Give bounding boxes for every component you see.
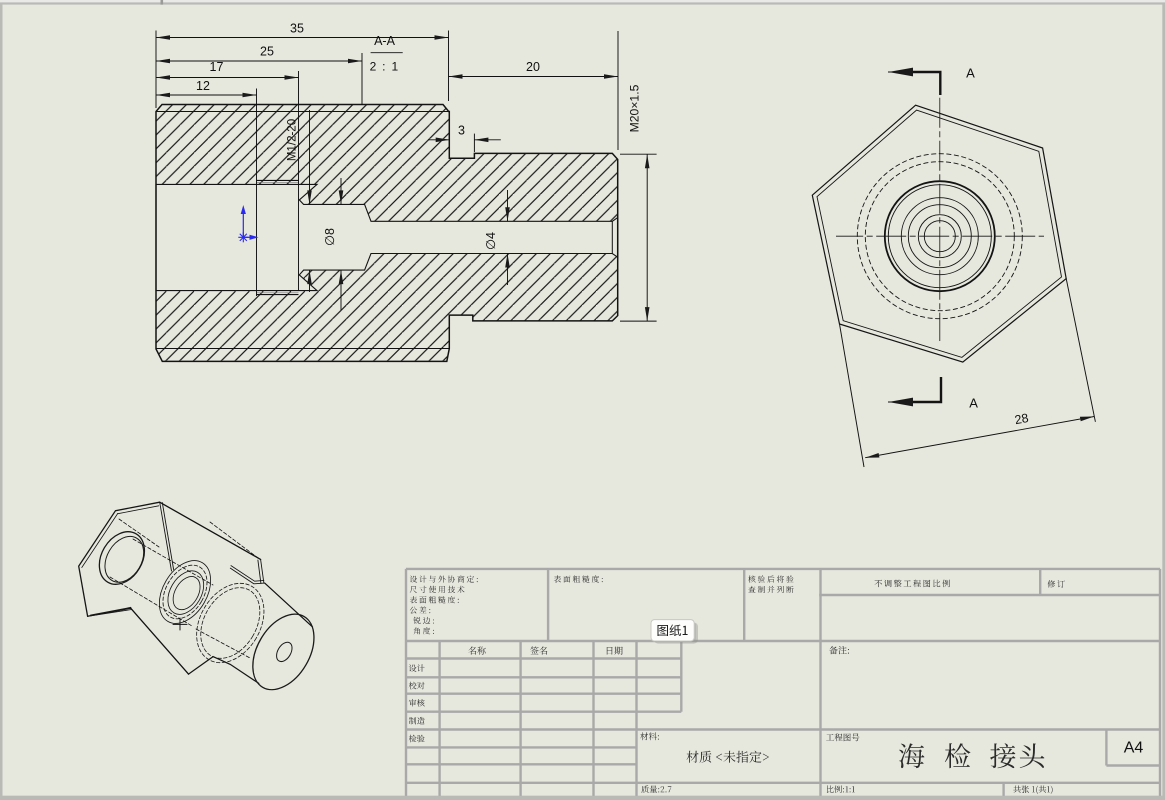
svg-text:35: 35 <box>290 22 304 36</box>
svg-text:25: 25 <box>260 45 274 59</box>
svg-text:M20×1.5: M20×1.5 <box>628 84 642 132</box>
svg-text:∅4: ∅4 <box>484 232 498 250</box>
svg-text:20: 20 <box>526 60 540 74</box>
svg-text:A: A <box>966 66 975 81</box>
svg-text:A: A <box>969 396 978 411</box>
svg-text:∅8: ∅8 <box>323 228 337 246</box>
svg-text:28: 28 <box>1014 411 1030 427</box>
svg-text:12: 12 <box>196 79 210 93</box>
svg-text:M1/2-20: M1/2-20 <box>287 119 299 161</box>
svg-text:A4: A4 <box>1124 740 1144 757</box>
svg-text:A-A: A-A <box>374 34 396 48</box>
svg-text:2 : 1: 2 : 1 <box>370 60 400 74</box>
svg-text:17: 17 <box>210 60 224 74</box>
svg-text:3: 3 <box>458 124 465 138</box>
